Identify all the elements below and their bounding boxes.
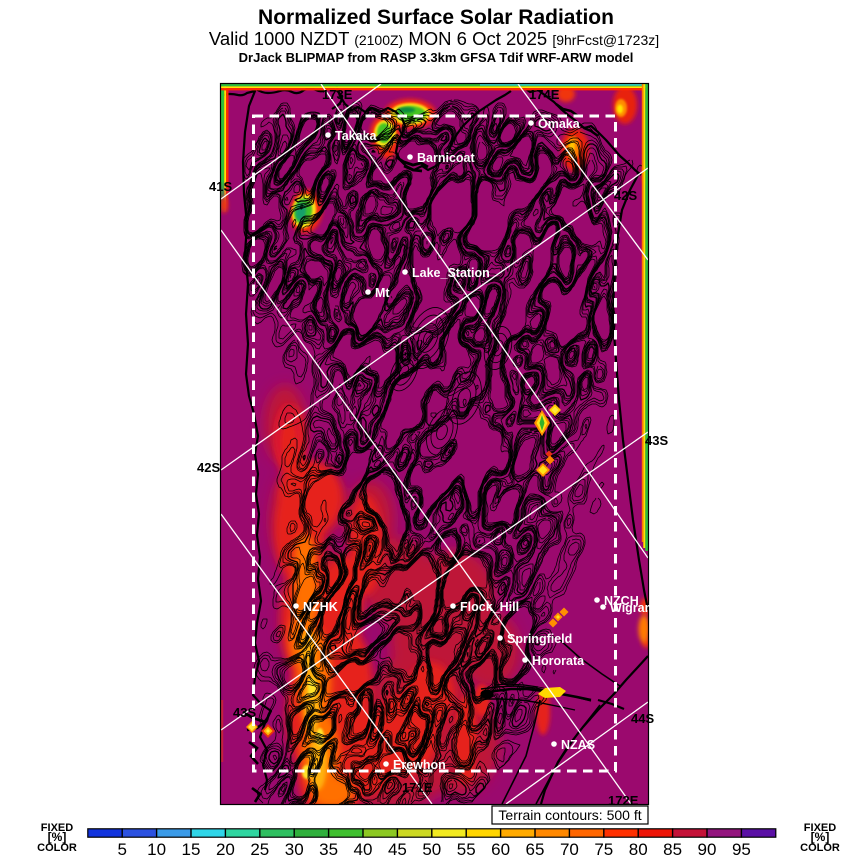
svg-text:20: 20 (216, 840, 235, 859)
svg-text:30: 30 (285, 840, 304, 859)
svg-text:85: 85 (663, 840, 682, 859)
svg-text:42S: 42S (197, 460, 220, 475)
svg-text:Normalized Surface Solar Radia: Normalized Surface Solar Radiation (258, 6, 614, 29)
svg-text:80: 80 (629, 840, 648, 859)
svg-text:Mt: Mt (375, 286, 390, 300)
svg-text:44S: 44S (631, 711, 654, 726)
svg-text:Omaka: Omaka (538, 117, 581, 131)
svg-text:35: 35 (319, 840, 338, 859)
svg-text:10: 10 (147, 840, 166, 859)
svg-text:Hororata: Hororata (532, 654, 585, 668)
svg-text:Erewhon: Erewhon (393, 758, 446, 772)
svg-text:173E: 173E (322, 87, 353, 102)
svg-text:75: 75 (594, 840, 613, 859)
svg-text:Terrain contours: 500 ft: Terrain contours: 500 ft (498, 807, 641, 823)
svg-text:90: 90 (698, 840, 717, 859)
svg-text:40: 40 (354, 840, 373, 859)
svg-text:DrJack BLIPMAP from RASP 3.3km: DrJack BLIPMAP from RASP 3.3km GFSA Tdif… (239, 50, 634, 65)
svg-text:45: 45 (388, 840, 407, 859)
svg-text:95: 95 (732, 840, 751, 859)
svg-text:55: 55 (457, 840, 476, 859)
svg-text:65: 65 (526, 840, 545, 859)
svg-text:174E: 174E (529, 87, 560, 102)
svg-text:41S: 41S (209, 179, 232, 194)
svg-text:NZHK: NZHK (303, 600, 338, 614)
svg-text:Valid 1000 NZDT (2100Z) MON 6: Valid 1000 NZDT (2100Z) MON 6 Oct 2025 [… (209, 28, 659, 49)
svg-text:Takaka: Takaka (335, 129, 378, 143)
svg-text:70: 70 (560, 840, 579, 859)
svg-text:25: 25 (250, 840, 269, 859)
svg-text:60: 60 (491, 840, 510, 859)
svg-text:43S: 43S (233, 705, 256, 720)
svg-text:Wigram: Wigram (610, 601, 656, 615)
svg-text:Barnicoat: Barnicoat (417, 151, 475, 165)
svg-text:NZAS: NZAS (561, 738, 595, 752)
svg-text:5: 5 (117, 840, 126, 859)
svg-text:50: 50 (422, 840, 441, 859)
svg-text:43S: 43S (645, 433, 668, 448)
svg-text:15: 15 (182, 840, 201, 859)
svg-text:42S: 42S (614, 188, 637, 203)
svg-text:Flock_Hill: Flock_Hill (460, 600, 519, 614)
svg-text:Lake_Station: Lake_Station (412, 266, 490, 280)
svg-text:Springfield: Springfield (507, 632, 572, 646)
svg-text:COLOR: COLOR (37, 842, 77, 854)
svg-text:171E: 171E (402, 780, 433, 795)
svg-text:COLOR: COLOR (800, 842, 840, 854)
